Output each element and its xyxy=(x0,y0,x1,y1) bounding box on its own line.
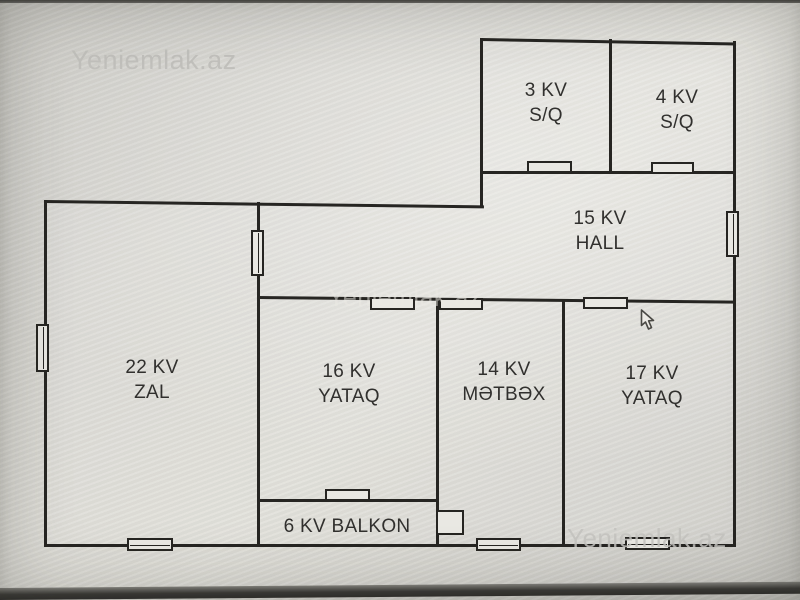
wall-sq-left xyxy=(480,38,483,206)
window-hall-right xyxy=(726,211,739,257)
kitchen-cabinet-box xyxy=(436,510,464,535)
floorplan-photo: 3 KV S/Q 4 KV S/Q 15 KV HALL 22 KV ZAL 1… xyxy=(0,0,800,600)
mouse-cursor-icon xyxy=(640,309,657,331)
window-zal-bottom xyxy=(127,538,173,551)
wall-sq-bottom xyxy=(481,171,736,174)
room-name: S/Q xyxy=(660,110,694,135)
room-name: 6 KV BALKON xyxy=(284,514,411,539)
room-area: 22 KV xyxy=(125,355,178,380)
watermark-middle: Yeniemlak.az xyxy=(328,284,482,313)
door-yataq17 xyxy=(583,297,628,309)
room-area: 16 KV xyxy=(322,359,375,384)
room-name: ZAL xyxy=(134,380,170,405)
door-sq3 xyxy=(527,161,572,173)
room-name: MƏTBƏX xyxy=(462,382,545,407)
wall-outer-left xyxy=(44,200,47,547)
wall-metbex-right xyxy=(562,299,565,547)
room-name: YATAQ xyxy=(621,386,683,411)
room-name: YATAQ xyxy=(318,384,380,409)
room-area: 17 KV xyxy=(625,361,678,386)
room-label-sq3: 3 KV S/Q xyxy=(486,78,606,128)
door-sq4 xyxy=(651,162,694,174)
room-label-sq4: 4 KV S/Q xyxy=(617,85,737,135)
watermark-top: Yeniemlak.az xyxy=(71,45,237,76)
watermark-bottom: Yeniemlak.az xyxy=(567,523,727,554)
window-metbex-bottom xyxy=(476,538,521,551)
room-area: 14 KV xyxy=(477,357,530,382)
room-area: 15 KV xyxy=(573,206,626,231)
wall-sq-divider xyxy=(609,39,612,174)
room-name: S/Q xyxy=(529,103,563,128)
room-name: HALL xyxy=(576,231,625,256)
room-label-yataq16: 16 KV YATAQ xyxy=(289,359,409,409)
door-balkon xyxy=(325,489,370,501)
room-label-hall: 15 KV HALL xyxy=(540,206,660,256)
room-label-balkon: 6 KV BALKON xyxy=(262,514,432,539)
room-label-zal: 22 KV ZAL xyxy=(92,355,212,405)
screen-top-edge xyxy=(0,0,800,3)
window-zal-left xyxy=(36,324,49,372)
room-area: 3 KV xyxy=(525,78,567,103)
room-label-yataq17: 17 KV YATAQ xyxy=(591,361,713,411)
window-zal-hall xyxy=(251,230,264,276)
room-area: 4 KV xyxy=(656,85,698,110)
room-label-metbex: 14 KV MƏTBƏX xyxy=(442,357,566,407)
